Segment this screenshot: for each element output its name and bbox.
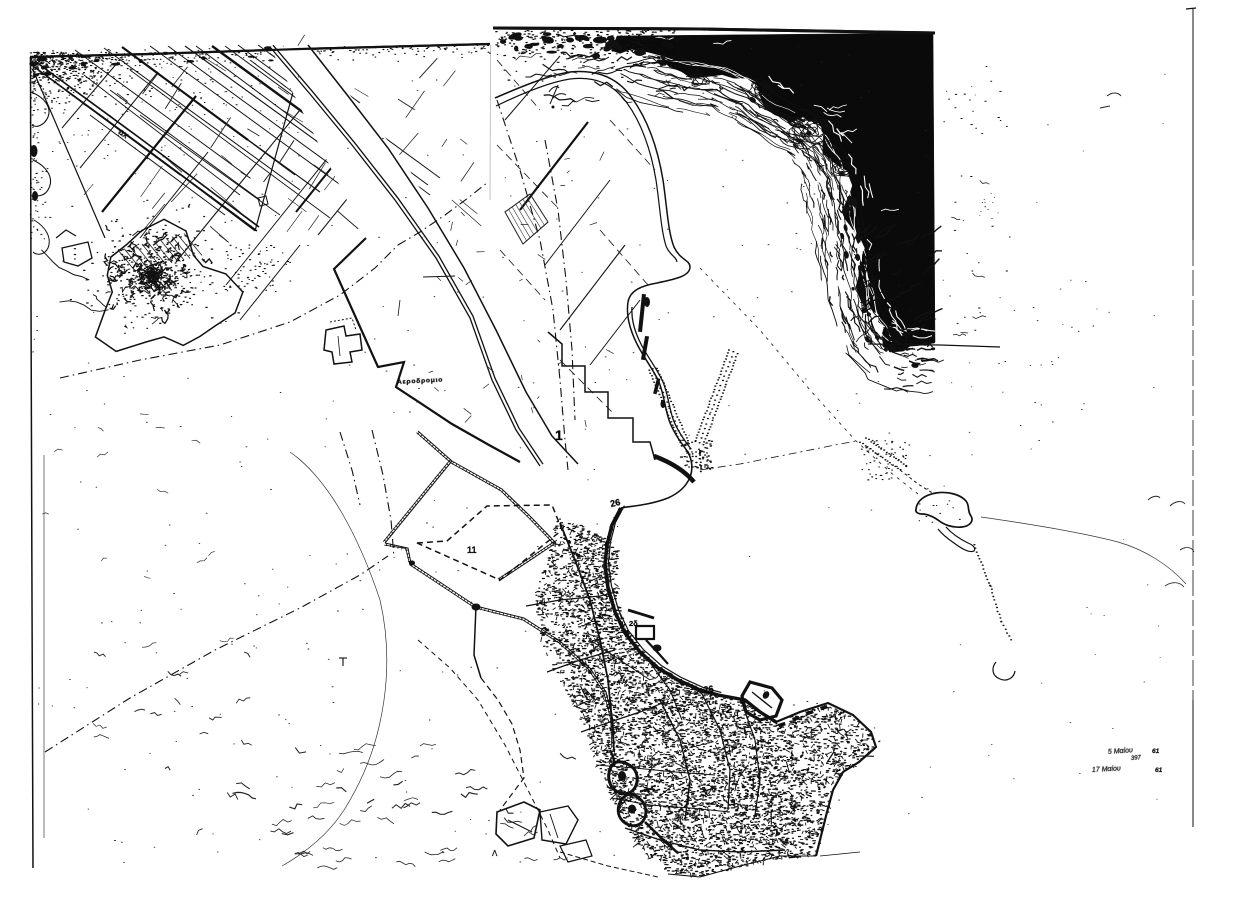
svg-text:61: 61 <box>1155 767 1163 774</box>
svg-text:26: 26 <box>703 684 714 695</box>
svg-text:11: 11 <box>467 545 477 555</box>
svg-text:17 Μαίου: 17 Μαίου <box>1092 764 1121 774</box>
svg-text:1: 1 <box>555 427 563 443</box>
svg-text:61: 61 <box>1152 748 1160 755</box>
svg-text:2: 2 <box>726 704 732 716</box>
svg-text:Λ: Λ <box>492 849 498 858</box>
svg-text:α: α <box>734 709 739 718</box>
svg-text:2δ: 2δ <box>629 619 638 628</box>
svg-text:397: 397 <box>1131 755 1142 762</box>
